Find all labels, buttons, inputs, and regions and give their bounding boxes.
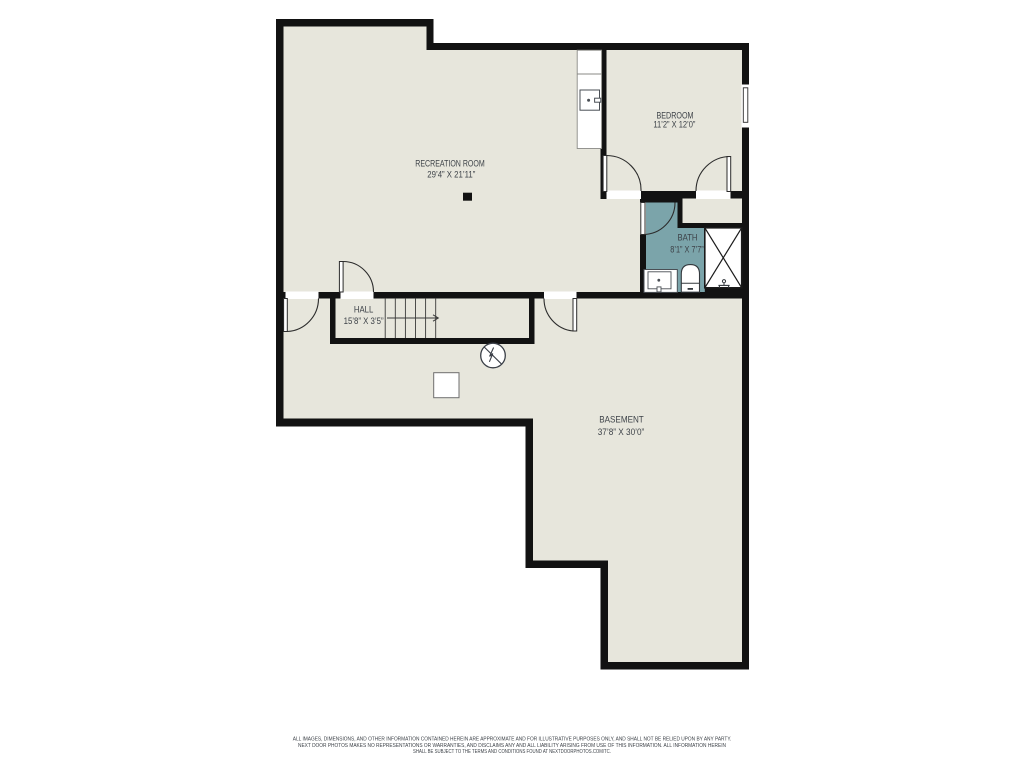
svg-text:15’8” X 3’5”: 15’8” X 3’5” — [344, 316, 384, 326]
svg-text:BATH: BATH — [678, 233, 698, 243]
svg-text:ALL IMAGES, DIMENSIONS, AND OT: ALL IMAGES, DIMENSIONS, AND OTHER INFORM… — [293, 737, 732, 743]
svg-text:BASEMENT: BASEMENT — [599, 415, 644, 425]
svg-text:37’8” X 30’0”: 37’8” X 30’0” — [598, 427, 645, 437]
svg-text:NEXT DOOR PHOTOS MAKES NO REPR: NEXT DOOR PHOTOS MAKES NO REPRESENTATION… — [298, 743, 726, 749]
svg-text:11’2” X 12’0”: 11’2” X 12’0” — [653, 120, 695, 130]
svg-text:8’1” X 7’7”: 8’1” X 7’7” — [670, 244, 704, 254]
svg-text:HALL: HALL — [354, 304, 374, 314]
svg-text:SHALL BE SUBJECT TO THE TERMS: SHALL BE SUBJECT TO THE TERMS AND CONDIT… — [413, 749, 611, 755]
svg-text:RECREATION ROOM: RECREATION ROOM — [415, 158, 485, 168]
svg-text:29’4” X 21’11”: 29’4” X 21’11” — [427, 169, 475, 179]
